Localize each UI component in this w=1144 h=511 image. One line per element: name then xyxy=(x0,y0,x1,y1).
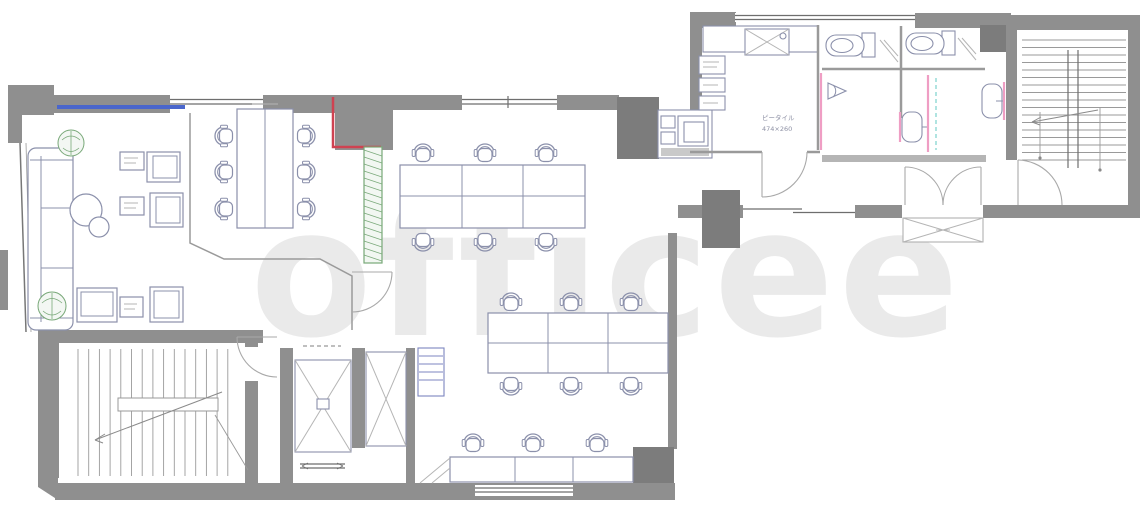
office-chair xyxy=(474,144,496,162)
cabinet-copier xyxy=(418,348,444,396)
wall-meeting-block xyxy=(335,95,393,150)
office-chair xyxy=(586,434,608,452)
pipe-shaft xyxy=(366,352,406,446)
office-chair xyxy=(560,378,582,396)
hall-note-line1: ピータイル xyxy=(762,113,795,122)
wc-area xyxy=(818,25,1004,162)
plant-icon xyxy=(58,130,84,156)
hall-note-line2: 474×260 xyxy=(762,125,792,133)
office-chair xyxy=(535,144,557,162)
urinal-icon xyxy=(828,83,846,99)
armchair xyxy=(150,287,183,322)
office-chair xyxy=(522,434,544,452)
lounge-table-small xyxy=(89,217,109,237)
office-chair xyxy=(215,125,233,147)
office-chair xyxy=(620,378,642,396)
side-table xyxy=(120,152,144,317)
planter-shelf xyxy=(364,147,382,263)
wall-bottom xyxy=(55,483,675,500)
elevator xyxy=(295,346,406,469)
armchair xyxy=(150,193,183,227)
office-chair xyxy=(215,198,233,220)
office-chair xyxy=(215,161,233,183)
wall-top-left-corner xyxy=(8,85,54,143)
entry-porch xyxy=(903,218,983,242)
wall-junction-block xyxy=(617,97,659,159)
window-highlight-blue xyxy=(57,105,185,109)
washbasin-icon xyxy=(902,112,929,142)
wall-office-right xyxy=(668,233,677,449)
office-chair xyxy=(412,144,434,162)
washbasin-icon xyxy=(982,84,1003,118)
floorplan-canvas: officee xyxy=(0,0,1144,511)
stair-door-arc xyxy=(1018,160,1062,205)
elevator-door xyxy=(300,463,345,469)
plant-icon xyxy=(38,292,66,320)
lounge xyxy=(28,130,183,330)
armchair xyxy=(77,288,117,322)
office-chair xyxy=(462,434,484,452)
wall-pier xyxy=(702,190,740,248)
office-chair xyxy=(298,125,316,147)
toilet-icon xyxy=(826,33,875,57)
staircase-right xyxy=(1018,40,1126,205)
desk-window-row xyxy=(450,457,633,482)
sink-icon xyxy=(745,29,789,55)
toilet-icon xyxy=(906,31,955,55)
office-chair xyxy=(500,378,522,396)
floorplan-drawing: officee xyxy=(0,0,1144,511)
